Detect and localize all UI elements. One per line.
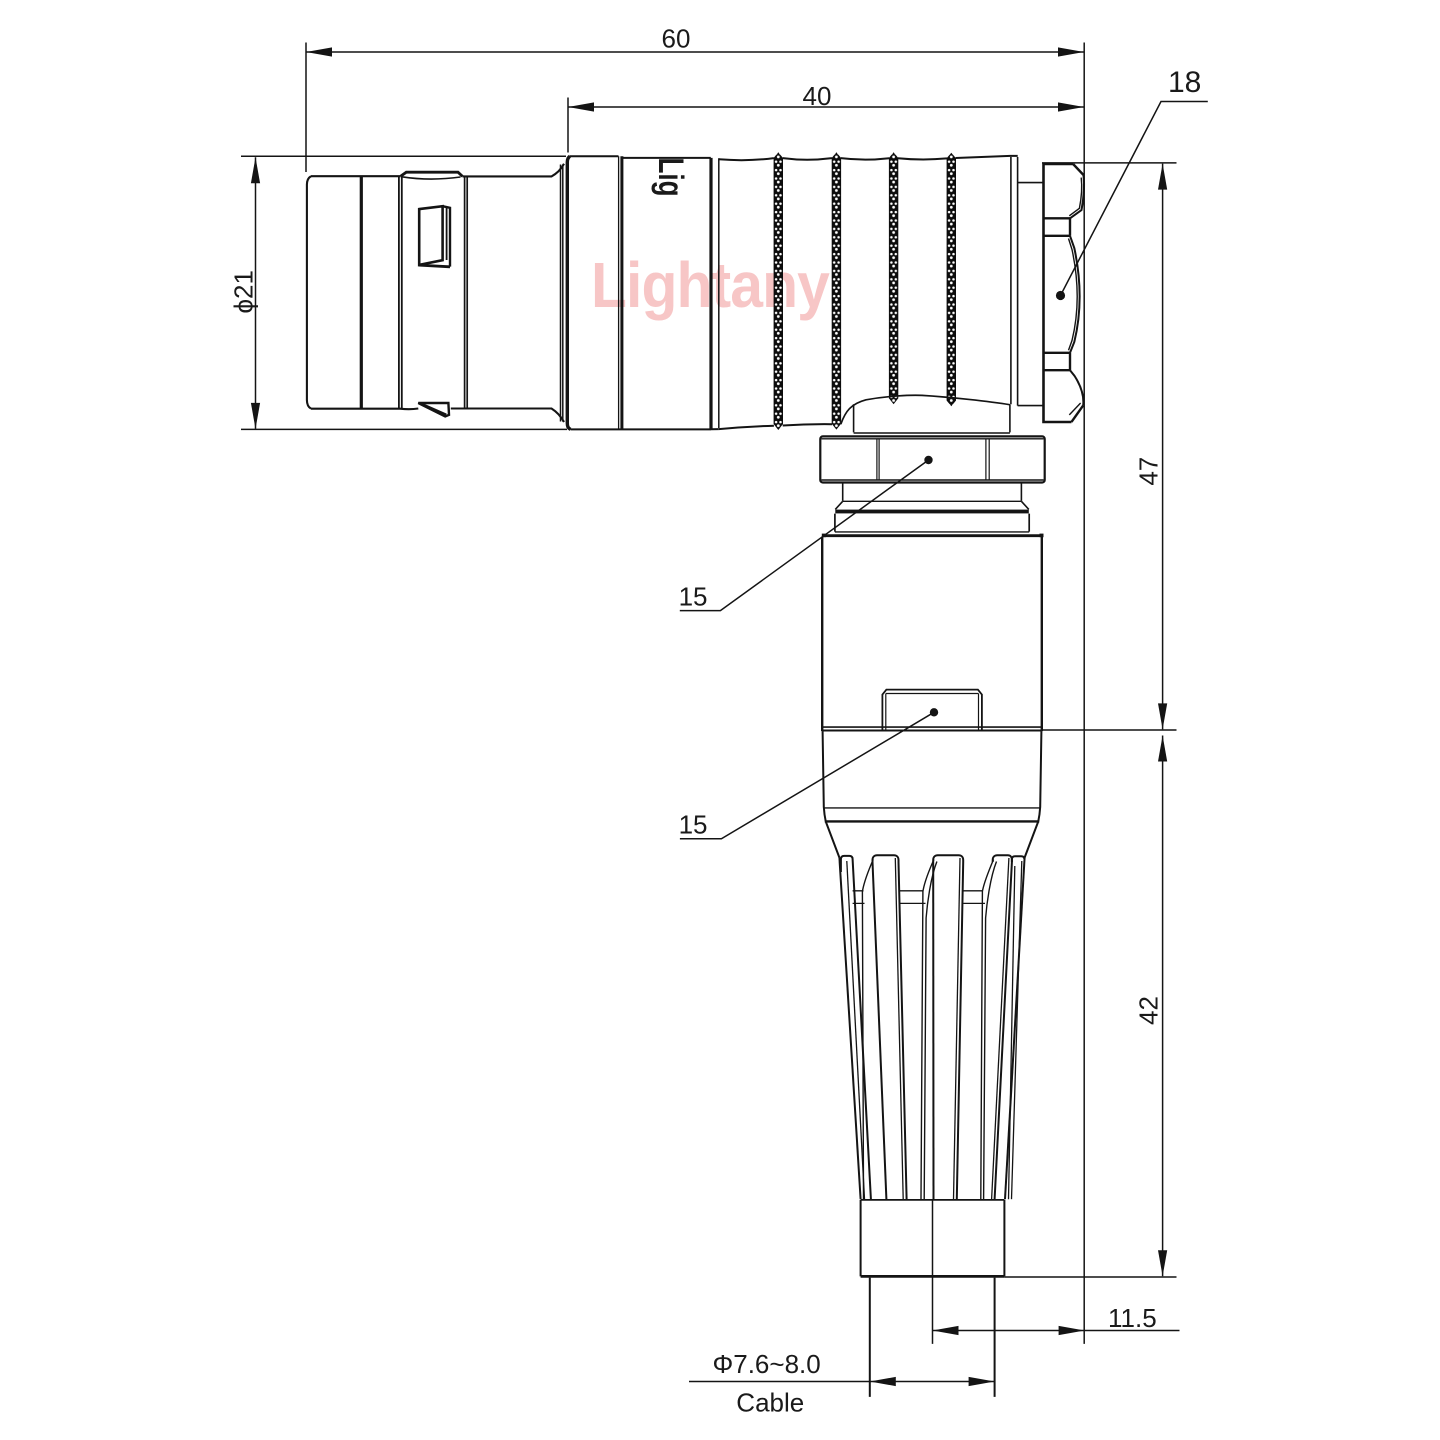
- svg-text:42: 42: [1134, 996, 1164, 1025]
- svg-text:40: 40: [803, 81, 832, 111]
- svg-text:47: 47: [1134, 457, 1164, 486]
- svg-text:60: 60: [662, 24, 691, 54]
- svg-text:11.5: 11.5: [1108, 1303, 1157, 1333]
- svg-text:15: 15: [679, 581, 708, 611]
- svg-text:Lig: Lig: [651, 158, 691, 197]
- svg-text:Φ7.6~8.0: Φ7.6~8.0: [713, 1349, 821, 1379]
- svg-text:Cable: Cable: [736, 1388, 804, 1418]
- svg-text:18: 18: [1168, 66, 1201, 99]
- svg-text:ϕ21: ϕ21: [229, 270, 259, 313]
- svg-text:15: 15: [679, 810, 708, 840]
